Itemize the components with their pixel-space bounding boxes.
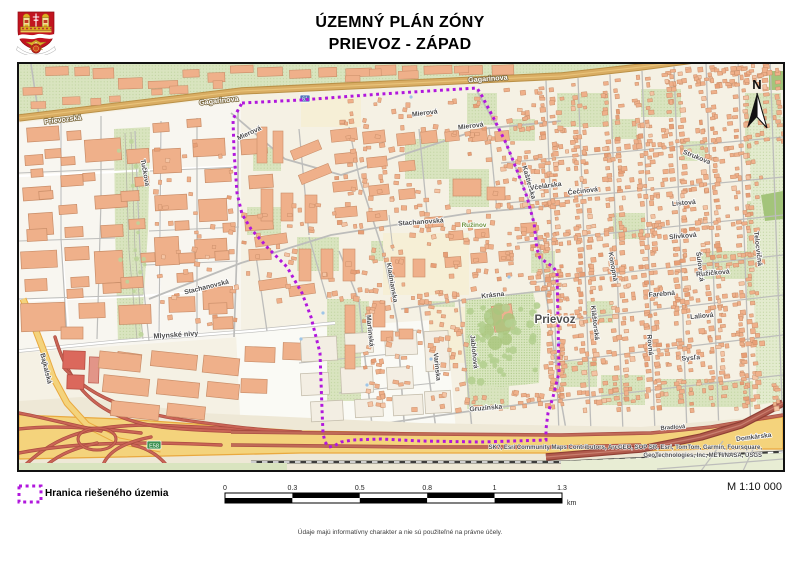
svg-text:km: km	[567, 500, 577, 507]
svg-text:1.3: 1.3	[557, 485, 567, 492]
svg-text:SK?, Esri Community Maps Contr: SK?, Esri Community Maps Contributors, A…	[489, 445, 763, 451]
svg-text:0: 0	[223, 485, 227, 492]
svg-text:1: 1	[493, 485, 497, 492]
svg-text:GeoTechnologies, Inc, METI/NAS: GeoTechnologies, Inc, METI/NASA, USGS	[643, 453, 762, 459]
svg-text:Ružinov: Ružinov	[462, 222, 487, 229]
svg-text:0.3: 0.3	[288, 485, 298, 492]
svg-text:0.8: 0.8	[422, 485, 432, 492]
svg-text:N: N	[752, 77, 761, 92]
svg-text:Prievoz: Prievoz	[535, 314, 576, 326]
svg-text:0.5: 0.5	[355, 485, 365, 492]
svg-text:E58: E58	[149, 444, 159, 450]
